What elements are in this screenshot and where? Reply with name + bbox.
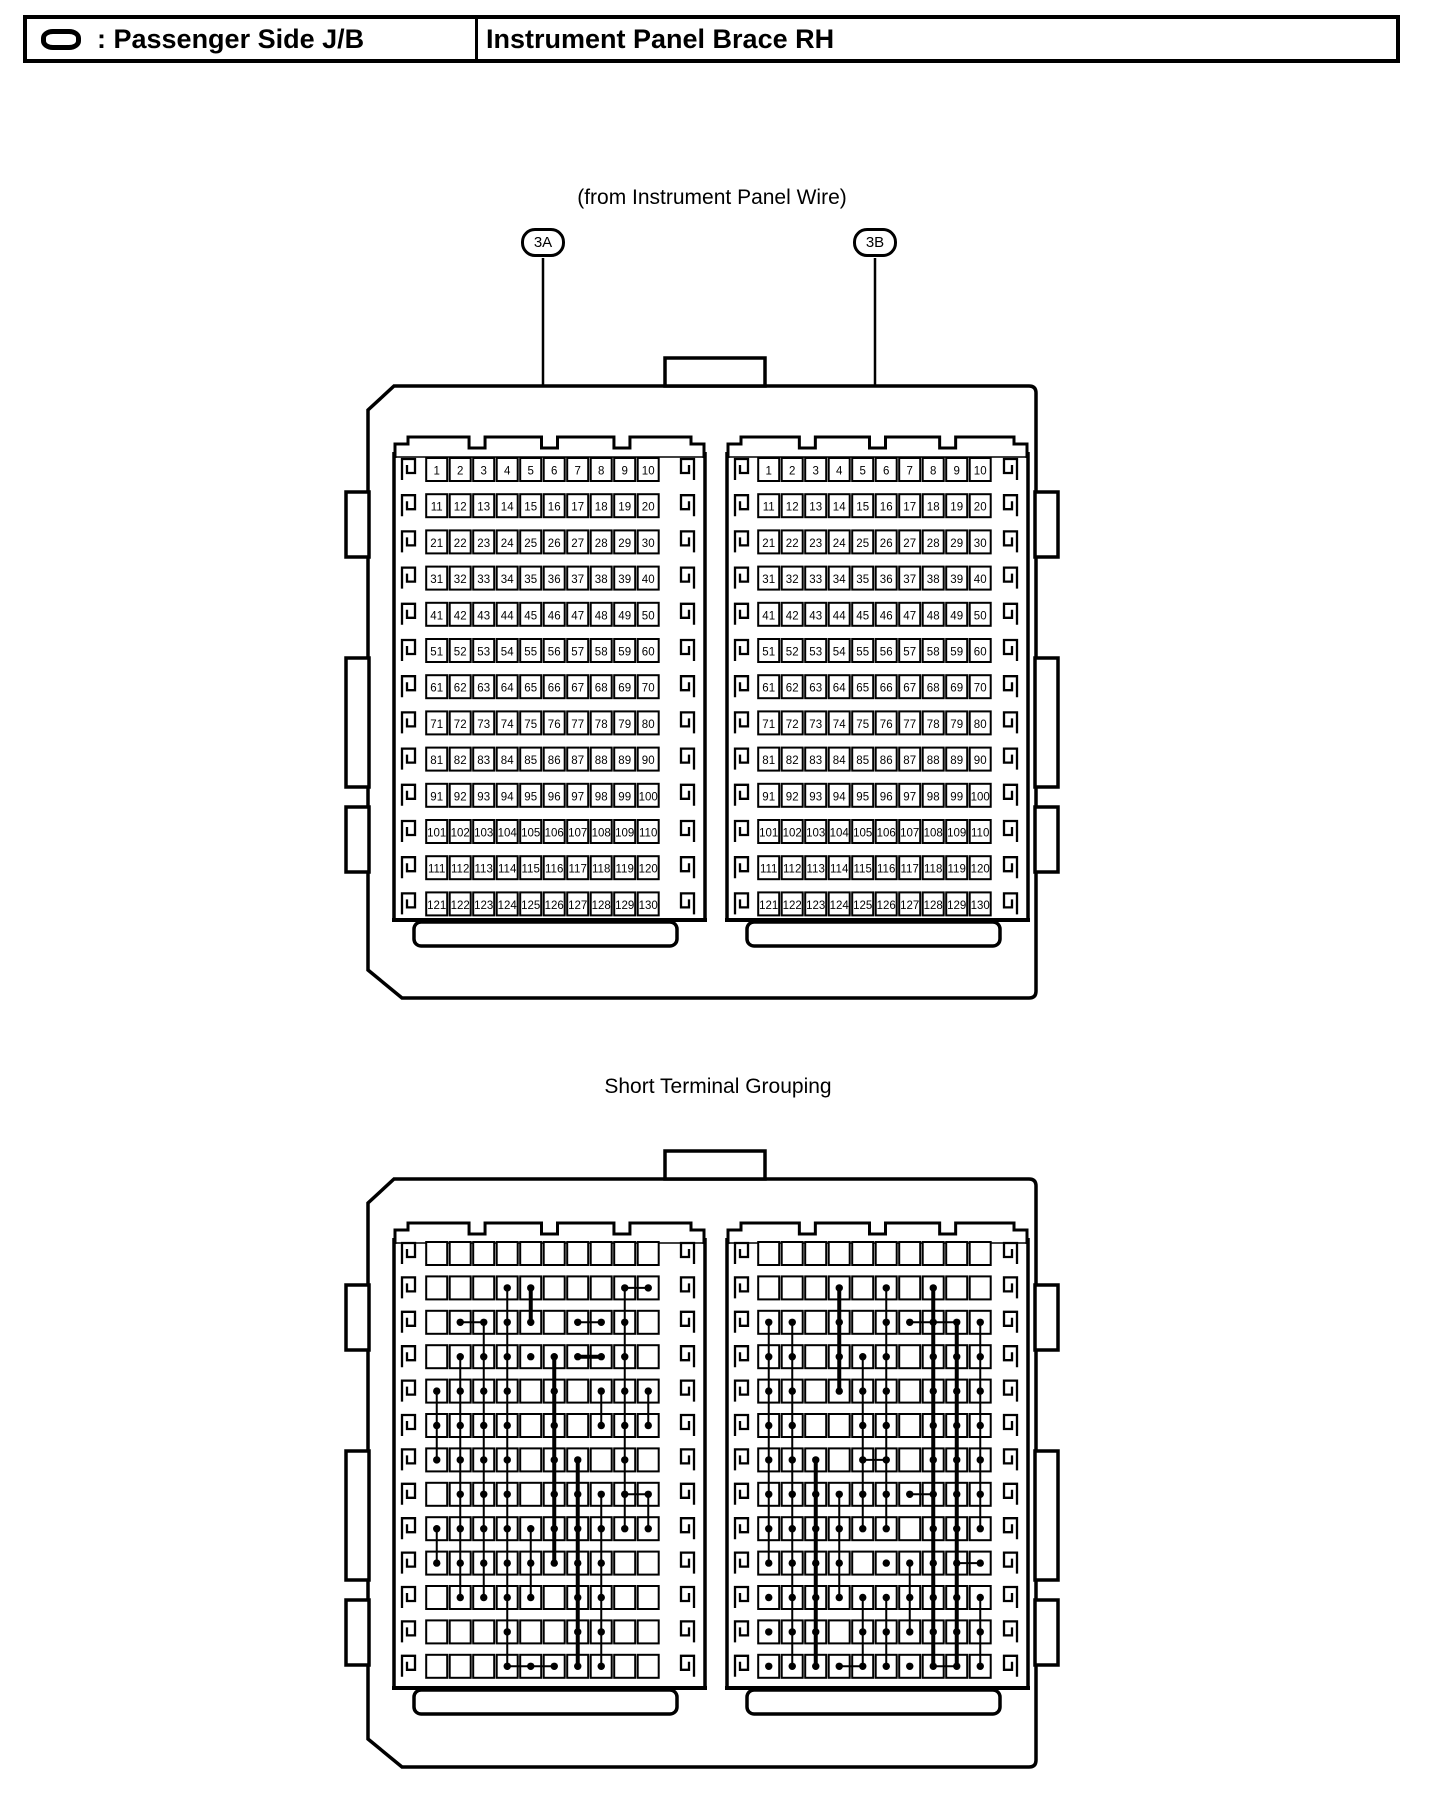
legend-label: : Passenger Side J/B	[97, 24, 364, 55]
pin-number: 35	[856, 574, 869, 586]
pin-number: 11	[431, 502, 443, 514]
short-terminal-dot	[789, 1491, 796, 1498]
pin-number: 32	[786, 574, 799, 586]
terminal-cell	[829, 1242, 850, 1265]
short-terminal-dot	[953, 1663, 960, 1670]
pin-number: 60	[974, 647, 987, 659]
terminal-cell	[591, 1276, 612, 1299]
pin-number: 10	[642, 466, 655, 478]
pin-number: 31	[762, 574, 775, 586]
pin-number: 8	[598, 466, 604, 478]
short-terminal-dot	[504, 1525, 511, 1532]
short-terminal-dot	[883, 1422, 890, 1429]
short-terminal-dot	[598, 1559, 605, 1566]
short-terminal-dot	[883, 1284, 890, 1291]
pin-number: 120	[639, 864, 658, 876]
pin-number: 103	[474, 828, 493, 840]
pin-number: 113	[807, 864, 825, 876]
pin-number: 63	[809, 683, 822, 695]
short-terminal-dot	[789, 1456, 796, 1463]
pin-number: 76	[548, 719, 561, 731]
short-terminal-dot	[598, 1319, 605, 1326]
short-terminal-dot	[457, 1559, 464, 1566]
terminal-cell	[970, 1276, 991, 1299]
pin-number: 124	[498, 900, 518, 912]
pin-number: 90	[642, 755, 655, 767]
short-terminal-dot	[930, 1456, 937, 1463]
pin-number: 107	[568, 828, 587, 840]
short-terminal-dot	[953, 1319, 960, 1326]
pin-number: 75	[524, 719, 537, 731]
short-terminal-dot	[812, 1525, 819, 1532]
terminal-cell	[426, 1242, 447, 1265]
short-terminal-dot	[953, 1628, 960, 1635]
terminal-cell	[567, 1414, 588, 1437]
pin-number: 15	[524, 502, 537, 514]
pin-number: 27	[571, 538, 584, 550]
pin-number: 121	[427, 900, 446, 912]
pin-number: 59	[618, 647, 631, 659]
terminal-cell	[638, 1586, 659, 1609]
short-terminal-dot	[574, 1559, 581, 1566]
pin-number: 37	[903, 574, 916, 586]
terminal-cell	[591, 1448, 612, 1471]
short-terminal-dot	[930, 1525, 937, 1532]
short-terminal-dot	[883, 1456, 890, 1463]
pin-number: 39	[950, 574, 963, 586]
pin-number: 117	[901, 864, 919, 876]
short-terminal-dot	[621, 1353, 628, 1360]
pin-number: 4	[504, 466, 511, 478]
short-terminal-dot	[859, 1663, 866, 1670]
short-terminal-dot	[836, 1319, 843, 1326]
short-terminal-dot	[765, 1525, 772, 1532]
short-terminal-dot	[789, 1525, 796, 1532]
pin-number: 55	[524, 647, 537, 659]
short-terminal-dot	[621, 1387, 628, 1394]
pin-number: 98	[595, 791, 608, 803]
terminal-cell	[805, 1242, 826, 1265]
short-terminal-dot	[883, 1353, 890, 1360]
pin-number: 91	[430, 791, 443, 803]
terminal-cell	[638, 1655, 659, 1678]
terminal-cell	[946, 1276, 967, 1299]
short-terminal-dot	[953, 1387, 960, 1394]
pin-number: 92	[786, 791, 799, 803]
short-terminal-dot	[859, 1525, 866, 1532]
pin-number: 8	[930, 466, 936, 478]
short-terminal-dot	[765, 1387, 772, 1394]
terminal-cell	[473, 1655, 494, 1678]
pin-number: 98	[927, 791, 940, 803]
pin-number: 56	[880, 647, 893, 659]
short-terminal-dot	[551, 1422, 558, 1429]
pin-number: 84	[833, 755, 846, 767]
pin-number: 51	[762, 647, 775, 659]
short-terminal-dot	[789, 1628, 796, 1635]
shell-side-tab-right	[1035, 1451, 1058, 1580]
terminal-cell	[899, 1345, 920, 1368]
pin-number: 39	[618, 574, 631, 586]
short-terminal-dot	[551, 1559, 558, 1566]
short-terminal-dot	[953, 1422, 960, 1429]
terminal-cell	[520, 1448, 541, 1471]
terminal-cell	[473, 1276, 494, 1299]
terminal-cell	[782, 1242, 803, 1265]
pin-number: 126	[545, 900, 564, 912]
short-terminal-dot	[574, 1456, 581, 1463]
pin-number: 47	[571, 610, 584, 622]
pin-number: 17	[571, 502, 584, 514]
pin-number: 59	[950, 647, 963, 659]
short-terminal-dot	[836, 1387, 843, 1394]
pin-number: 63	[477, 683, 490, 695]
pin-number: 91	[762, 791, 775, 803]
short-terminal-dot	[765, 1491, 772, 1498]
short-terminal-dot	[598, 1663, 605, 1670]
terminal-cell	[805, 1345, 826, 1368]
short-terminal-dot	[504, 1422, 511, 1429]
short-terminal-dot	[836, 1353, 843, 1360]
shell-side-tab-left	[346, 1285, 369, 1350]
pin-number: 123	[806, 900, 825, 912]
shell-side-tab-right	[1035, 492, 1058, 557]
pin-number: 85	[856, 755, 869, 767]
terminal-cell	[923, 1242, 944, 1265]
terminal-cell	[450, 1242, 471, 1265]
terminal-cell	[426, 1276, 447, 1299]
terminal-cell	[899, 1276, 920, 1299]
pin-number: 118	[592, 864, 610, 876]
terminal-cell	[829, 1414, 850, 1437]
pin-number: 66	[548, 683, 561, 695]
pin-number: 101	[427, 828, 446, 840]
pin-number: 30	[642, 538, 655, 550]
pin-number: 20	[642, 502, 655, 514]
short-terminal-dot	[953, 1353, 960, 1360]
terminal-cell	[852, 1552, 873, 1575]
shell-side-tab-left	[346, 807, 369, 872]
pin-number: 49	[950, 610, 963, 622]
pin-number: 50	[974, 610, 987, 622]
terminal-cell	[899, 1242, 920, 1265]
pin-number: 123	[474, 900, 493, 912]
pin-number: 80	[642, 719, 655, 731]
pin-number: 43	[809, 610, 822, 622]
short-terminal-dot	[433, 1387, 440, 1394]
short-terminal-dot	[551, 1525, 558, 1532]
short-terminal-dot	[977, 1456, 984, 1463]
pin-number: 28	[595, 538, 608, 550]
shell-side-tab-left	[346, 492, 369, 557]
short-terminal-dot	[930, 1663, 937, 1670]
pin-number: 7	[906, 466, 912, 478]
pin-number: 85	[524, 755, 537, 767]
pin-number: 79	[950, 719, 963, 731]
pin-number: 34	[833, 574, 846, 586]
terminal-cell	[426, 1586, 447, 1609]
pin-number: 58	[595, 647, 608, 659]
short-terminal-dot	[527, 1525, 534, 1532]
pin-number: 69	[618, 683, 631, 695]
short-terminal-dot	[433, 1525, 440, 1532]
short-terminal-dot	[598, 1491, 605, 1498]
terminal-cell	[852, 1242, 873, 1265]
pin-number: 109	[615, 828, 634, 840]
pin-number: 105	[853, 828, 872, 840]
pin-number: 105	[521, 828, 540, 840]
pin-number: 26	[880, 538, 893, 550]
terminal-cell	[829, 1620, 850, 1643]
short-terminal-dot	[621, 1525, 628, 1532]
short-terminal-dot	[883, 1594, 890, 1601]
terminal-cell	[876, 1242, 897, 1265]
terminal-cell	[426, 1311, 447, 1334]
pin-number: 7	[574, 466, 580, 478]
pin-number: 1	[433, 466, 439, 478]
short-terminal-dot	[765, 1456, 772, 1463]
pin-number: 2	[789, 466, 795, 478]
short-terminal-dot	[433, 1559, 440, 1566]
short-terminal-dot	[598, 1387, 605, 1394]
short-terminal-dot	[883, 1559, 890, 1566]
pin-number: 5	[527, 466, 533, 478]
pin-number: 78	[595, 719, 608, 731]
pin-number: 81	[430, 755, 443, 767]
pin-number: 111	[428, 864, 445, 876]
short-terminal-dot	[480, 1456, 487, 1463]
pin-number: 38	[927, 574, 940, 586]
terminal-cell	[591, 1242, 612, 1265]
pin-number: 69	[950, 683, 963, 695]
terminal-cell	[614, 1552, 635, 1575]
short-terminal-dot	[621, 1284, 628, 1291]
pin-number: 54	[501, 647, 514, 659]
pin-number: 40	[642, 574, 655, 586]
short-terminal-dot	[930, 1353, 937, 1360]
pin-number: 87	[571, 755, 584, 767]
short-terminal-dot	[527, 1594, 534, 1601]
terminal-cell	[758, 1242, 779, 1265]
pin-number: 17	[903, 502, 916, 514]
pin-number: 81	[762, 755, 775, 767]
pin-number: 25	[524, 538, 537, 550]
short-terminal-dot	[789, 1594, 796, 1601]
pin-number: 96	[548, 791, 561, 803]
pin-number: 30	[974, 538, 987, 550]
short-terminal-dot	[789, 1663, 796, 1670]
header-legend-cell: : Passenger Side J/B	[27, 19, 475, 59]
short-terminal-dot	[930, 1559, 937, 1566]
short-terminal-dot	[765, 1663, 772, 1670]
shell-side-tab-right	[1035, 807, 1058, 872]
short-terminal-dot	[433, 1422, 440, 1429]
pin-number: 86	[880, 755, 893, 767]
short-terminal-dot	[457, 1491, 464, 1498]
short-terminal-dot	[598, 1353, 605, 1360]
short-terminal-dot	[953, 1525, 960, 1532]
short-terminal-dot	[574, 1525, 581, 1532]
short-terminal-dot	[480, 1491, 487, 1498]
short-terminal-dot	[621, 1319, 628, 1326]
pin-number: 6	[883, 466, 889, 478]
pin-number: 118	[924, 864, 942, 876]
pin-number: 77	[571, 719, 584, 731]
page-title: Instrument Panel Brace RH	[486, 24, 834, 55]
pin-number: 27	[903, 538, 916, 550]
pin-number: 48	[595, 610, 608, 622]
pin-number: 73	[477, 719, 490, 731]
terminal-cell	[638, 1345, 659, 1368]
short-terminal-dot	[953, 1594, 960, 1601]
pin-number: 128	[924, 900, 943, 912]
short-terminal-dot	[977, 1353, 984, 1360]
short-terminal-dot	[812, 1663, 819, 1670]
short-terminal-dot	[906, 1319, 913, 1326]
terminal-cell	[520, 1380, 541, 1403]
pin-number: 72	[786, 719, 799, 731]
pin-number: 124	[830, 900, 850, 912]
terminal-cell	[899, 1414, 920, 1437]
short-terminal-dot	[906, 1491, 913, 1498]
pin-number: 120	[971, 864, 990, 876]
pin-number: 12	[454, 502, 467, 514]
pin-number: 86	[548, 755, 561, 767]
pin-number: 88	[927, 755, 940, 767]
pin-number: 67	[571, 683, 584, 695]
pin-number: 102	[783, 828, 802, 840]
terminal-cell	[638, 1242, 659, 1265]
short-terminal-dot	[480, 1594, 487, 1601]
pin-number: 112	[783, 864, 801, 876]
pin-number: 51	[430, 647, 443, 659]
short-terminal-dot	[457, 1319, 464, 1326]
short-terminal-dot	[977, 1628, 984, 1635]
pin-number: 66	[880, 683, 893, 695]
short-terminal-dot	[789, 1422, 796, 1429]
pin-number: 110	[971, 828, 989, 840]
short-terminal-dot	[621, 1422, 628, 1429]
pin-number: 67	[903, 683, 916, 695]
short-terminal-dot	[906, 1594, 913, 1601]
pin-number: 18	[595, 502, 608, 514]
terminal-cell	[520, 1620, 541, 1643]
short-terminal-dot	[930, 1319, 937, 1326]
pin-number: 106	[545, 828, 564, 840]
shell-side-tab-right	[1035, 658, 1058, 787]
short-terminal-dot	[859, 1456, 866, 1463]
pin-number: 104	[830, 828, 850, 840]
terminal-cell	[638, 1552, 659, 1575]
pin-number: 53	[477, 647, 490, 659]
pin-number: 43	[477, 610, 490, 622]
short-terminal-dot	[504, 1663, 511, 1670]
short-terminal-dot	[977, 1663, 984, 1670]
terminal-cell	[638, 1620, 659, 1643]
pin-number: 20	[974, 502, 987, 514]
short-terminal-dot	[977, 1387, 984, 1394]
short-terminal-dot	[859, 1422, 866, 1429]
terminal-cell	[426, 1345, 447, 1368]
short-terminal-dot	[504, 1319, 511, 1326]
terminal-cell	[805, 1414, 826, 1437]
short-terminal-dot	[765, 1319, 772, 1326]
pin-number: 21	[762, 538, 775, 550]
short-terminal-dot	[457, 1456, 464, 1463]
short-terminal-dot	[977, 1559, 984, 1566]
short-terminal-dot	[977, 1525, 984, 1532]
pin-number: 14	[501, 502, 514, 514]
pin-number: 29	[618, 538, 631, 550]
pin-number: 122	[783, 900, 802, 912]
pin-number: 3	[480, 466, 486, 478]
connector-label-3b-text: 3B	[866, 234, 884, 251]
pin-number: 102	[451, 828, 470, 840]
shell-side-tab-right	[1035, 1285, 1058, 1350]
pin-number: 4	[836, 466, 843, 478]
terminal-cell	[852, 1276, 873, 1299]
pin-number: 44	[833, 610, 846, 622]
terminal-cell	[970, 1242, 991, 1265]
pin-number: 129	[615, 900, 634, 912]
terminal-cell	[899, 1517, 920, 1540]
short-terminal-dot	[859, 1491, 866, 1498]
short-terminal-dot	[574, 1491, 581, 1498]
connector-label-3a-text: 3A	[534, 234, 552, 251]
short-terminal-dot	[789, 1387, 796, 1394]
pin-number: 112	[451, 864, 469, 876]
pin-number: 128	[592, 900, 611, 912]
pin-number: 46	[548, 610, 561, 622]
terminal-cell	[450, 1276, 471, 1299]
pin-number: 41	[430, 610, 443, 622]
pin-number: 127	[568, 900, 587, 912]
pin-number: 35	[524, 574, 537, 586]
short-terminal-dot	[504, 1559, 511, 1566]
short-terminal-dot	[527, 1663, 534, 1670]
pin-number: 111	[760, 864, 777, 876]
short-terminal-dot	[953, 1491, 960, 1498]
short-terminal-dot	[457, 1594, 464, 1601]
short-terminal-dot	[836, 1525, 843, 1532]
pin-number: 116	[545, 864, 563, 876]
pin-number: 10	[974, 466, 987, 478]
shell-side-tab-left	[346, 658, 369, 787]
short-terminal-dot	[480, 1525, 487, 1532]
pin-number: 15	[856, 502, 869, 514]
short-terminal-dot	[551, 1491, 558, 1498]
short-terminal-dot	[457, 1422, 464, 1429]
manual-page: 1234567891011121314151617181920212223242…	[0, 0, 1440, 1820]
pin-number: 130	[639, 900, 658, 912]
pin-number: 5	[859, 466, 865, 478]
short-terminal-dot	[977, 1594, 984, 1601]
connector-diagram: 1234567891011121314151617181920212223242…	[0, 0, 1440, 1820]
terminal-cell	[450, 1620, 471, 1643]
pin-number: 87	[903, 755, 916, 767]
pin-number: 115	[854, 864, 872, 876]
pin-number: 11	[763, 502, 775, 514]
pin-number: 70	[974, 683, 987, 695]
short-terminal-dot	[906, 1628, 913, 1635]
terminal-cell	[544, 1586, 565, 1609]
short-terminal-dot	[883, 1319, 890, 1326]
pin-number: 92	[454, 791, 467, 803]
short-terminal-dot	[765, 1559, 772, 1566]
pin-number: 68	[927, 683, 940, 695]
pin-number: 57	[903, 647, 916, 659]
terminal-cell	[782, 1276, 803, 1299]
